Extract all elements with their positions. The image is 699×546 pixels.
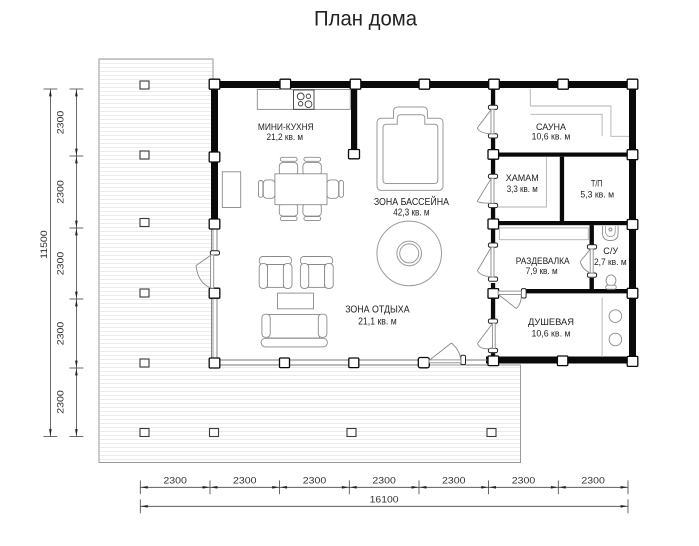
svg-text:42,3 кв. м: 42,3 кв. м [393, 207, 429, 218]
svg-text:2300: 2300 [512, 475, 536, 486]
svg-text:С/У: С/У [603, 246, 618, 256]
svg-text:10,6 кв. м: 10,6 кв. м [532, 328, 571, 338]
svg-text:2300: 2300 [56, 390, 67, 414]
svg-text:2300: 2300 [56, 322, 67, 346]
svg-text:3,3 кв. м: 3,3 кв. м [507, 184, 538, 194]
svg-text:2300: 2300 [581, 475, 605, 486]
svg-text:16100: 16100 [370, 494, 399, 505]
svg-text:7,9 кв. м: 7,9 кв. м [526, 266, 558, 276]
svg-text:План дома: План дома [314, 7, 417, 31]
svg-text:21,2 кв. м: 21,2 кв. м [267, 132, 304, 142]
svg-text:11500: 11500 [39, 230, 50, 259]
svg-text:САУНА: САУНА [536, 122, 567, 132]
svg-text:2,7 кв. м: 2,7 кв. м [594, 257, 627, 267]
svg-text:21,1 кв. м: 21,1 кв. м [358, 316, 397, 327]
svg-text:2300: 2300 [303, 475, 327, 486]
svg-text:МИНИ-КУХНЯ: МИНИ-КУХНЯ [258, 122, 314, 132]
svg-text:2300: 2300 [56, 180, 67, 204]
svg-text:2300: 2300 [442, 475, 466, 486]
svg-text:ЗОНА БАССЕЙНА: ЗОНА БАССЕЙНА [374, 195, 449, 208]
svg-text:2300: 2300 [372, 475, 396, 486]
svg-text:10,6 кв. м: 10,6 кв. м [532, 132, 571, 142]
svg-text:ЗОНА ОТДЫХА: ЗОНА ОТДЫХА [345, 304, 410, 315]
svg-text:Т/П: Т/П [591, 179, 602, 189]
svg-text:5,3 кв. м: 5,3 кв. м [580, 190, 614, 200]
svg-text:ХАМАМ: ХАМАМ [506, 173, 539, 183]
svg-text:2300: 2300 [163, 475, 187, 486]
svg-text:2300: 2300 [56, 111, 67, 135]
svg-text:2300: 2300 [233, 475, 257, 486]
svg-text:ДУШЕВАЯ: ДУШЕВАЯ [528, 317, 574, 327]
svg-text:РАЗДЕВАЛКА: РАЗДЕВАЛКА [516, 256, 571, 266]
svg-text:2300: 2300 [56, 252, 67, 276]
